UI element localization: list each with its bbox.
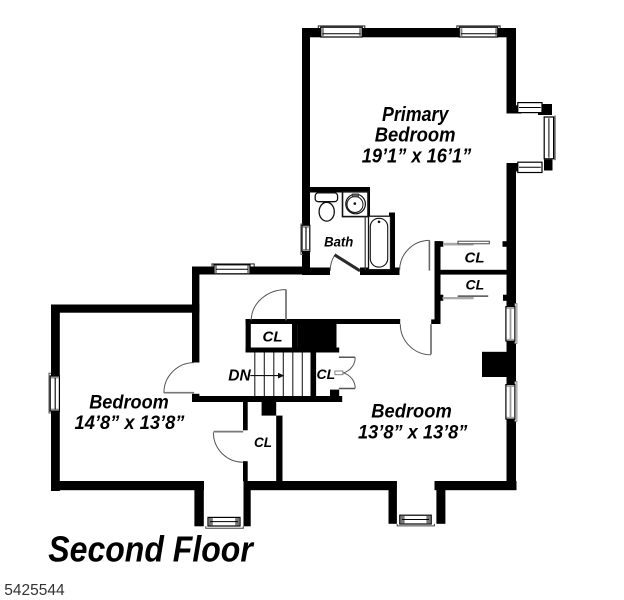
svg-text:Bedroom: Bedroom (371, 401, 452, 423)
svg-text:CL: CL (465, 249, 485, 266)
svg-text:CL: CL (316, 366, 335, 382)
svg-text:Bedroom: Bedroom (89, 392, 169, 414)
svg-text:13’8” x 13’8”: 13’8” x 13’8” (358, 422, 468, 444)
svg-text:Second Floor: Second Floor (48, 529, 254, 570)
svg-text:14’8” x 13’8”: 14’8” x 13’8” (75, 412, 185, 434)
svg-text:CL: CL (254, 435, 272, 450)
svg-text:5425544: 5425544 (4, 582, 65, 599)
svg-text:Bedroom: Bedroom (375, 124, 456, 146)
svg-text:Bath: Bath (324, 234, 353, 249)
svg-text:CL: CL (465, 277, 484, 293)
svg-text:DN: DN (228, 368, 251, 385)
svg-text:Primary: Primary (382, 104, 449, 126)
svg-text:CL: CL (263, 329, 283, 346)
svg-text:19’1” x 16’1”: 19’1” x 16’1” (362, 146, 472, 168)
